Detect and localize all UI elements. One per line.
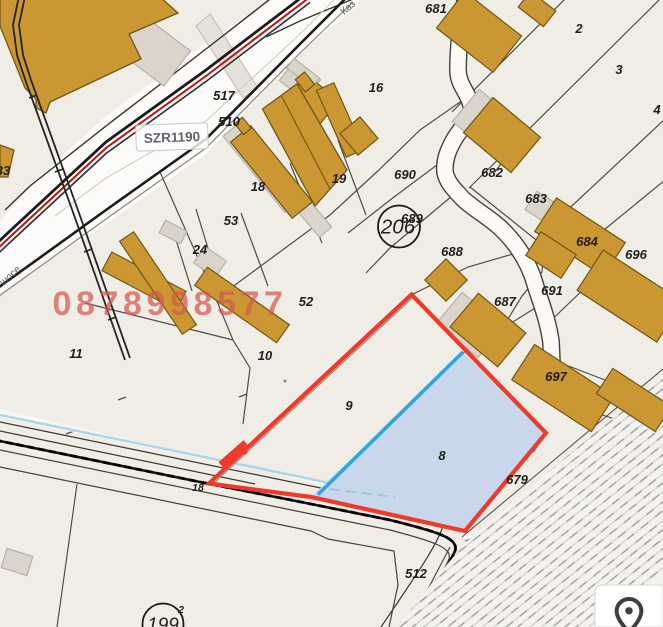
svg-text:SZR1190: SZR1190 [144,129,201,146]
svg-text:33: 33 [0,163,11,178]
svg-text:690: 690 [394,167,416,182]
svg-text:53: 53 [224,213,239,228]
svg-text:19: 19 [332,171,347,186]
svg-text:691: 691 [541,283,563,298]
svg-text:3: 3 [615,62,623,77]
svg-text:683: 683 [525,191,547,206]
svg-text:4: 4 [652,102,661,117]
svg-text:0878998577: 0878998577 [52,285,287,323]
svg-text:52: 52 [299,294,314,309]
svg-text:517: 517 [213,88,235,103]
svg-text:18: 18 [192,482,204,494]
svg-text:510: 510 [218,114,240,129]
svg-text:682: 682 [481,165,503,180]
svg-text:2: 2 [574,21,583,36]
svg-text:206: 206 [380,216,416,239]
svg-text:11: 11 [69,346,83,361]
svg-text:199: 199 [147,615,179,627]
svg-text:16: 16 [369,80,384,95]
svg-text:18: 18 [251,179,266,194]
svg-text:687: 687 [494,294,516,309]
svg-text:696: 696 [625,247,647,262]
svg-text:10: 10 [258,348,273,363]
svg-text:9: 9 [345,398,353,413]
svg-text:697: 697 [545,369,567,384]
svg-text:8: 8 [438,448,446,463]
svg-text:679: 679 [506,472,528,487]
svg-text:24: 24 [192,242,208,257]
svg-text:684: 684 [576,234,598,249]
svg-text:681: 681 [425,1,447,16]
svg-text:688: 688 [441,244,463,259]
svg-text:512: 512 [405,566,427,581]
